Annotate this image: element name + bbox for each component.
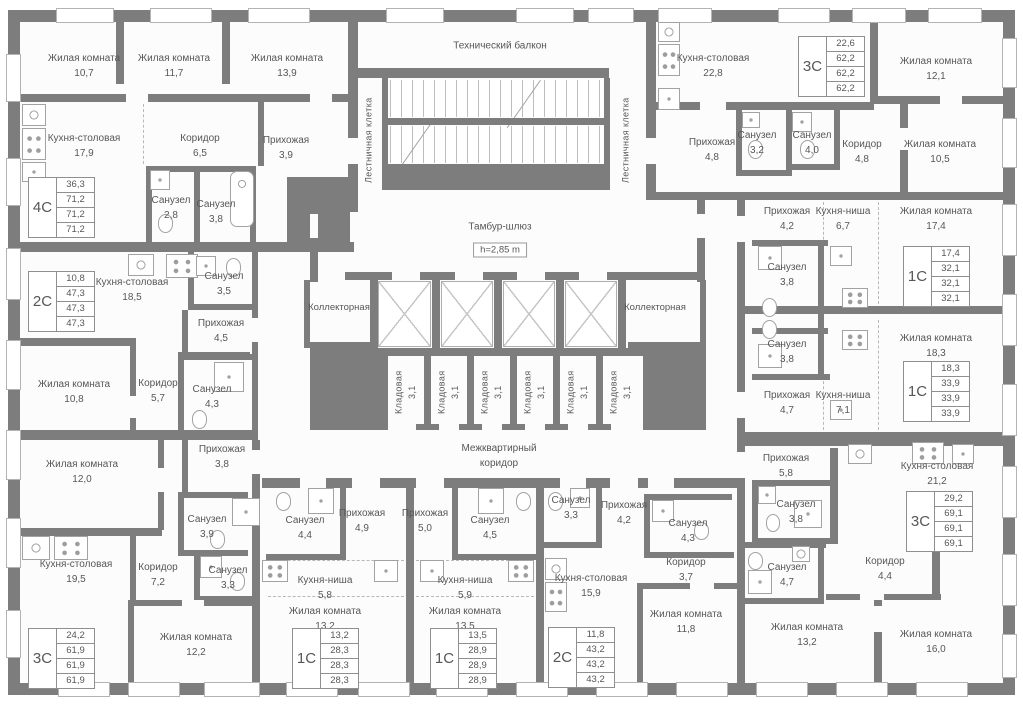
room-area: 3,8 <box>768 275 807 290</box>
room-name: Кухня-столовая <box>40 557 113 572</box>
wall <box>870 96 1003 104</box>
room-label: Жилая комната11,8 <box>650 607 722 637</box>
room-label: Санузел4,7 <box>768 560 807 590</box>
door-gap <box>700 102 726 110</box>
room-area: 4,2 <box>601 513 647 528</box>
window-marker <box>1002 384 1017 436</box>
apartment-area-value: 32,1 <box>932 261 969 276</box>
window-marker <box>1002 634 1017 678</box>
room-name: Жилая комната <box>904 137 976 152</box>
room-name: Коридор <box>138 560 178 575</box>
window-marker <box>6 518 21 568</box>
room-area: 4,7 <box>768 575 807 590</box>
room-label: Жилая комната12,0 <box>46 457 118 487</box>
room-name: Жилая комната <box>771 620 843 635</box>
room-name: Кухня-ниша <box>816 204 871 219</box>
room-label: Санузел3,9 <box>188 512 227 542</box>
wall <box>834 108 840 170</box>
apartment-area-value: 24,2 <box>57 629 94 643</box>
room-label: Жилая комната10,7 <box>48 51 120 81</box>
wall <box>348 22 358 212</box>
wall <box>744 598 824 604</box>
wall <box>188 304 256 310</box>
wall <box>556 280 564 354</box>
room-label: Кухня-столовая18,5 <box>96 275 169 305</box>
room-area: 13,9 <box>251 66 323 81</box>
door-gap <box>874 606 882 632</box>
room-area: 18,3 <box>900 346 972 361</box>
room-area: 7,2 <box>138 575 178 590</box>
window-marker <box>6 54 21 102</box>
room-area: 4,0 <box>793 143 832 158</box>
room-area: 13,2 <box>771 635 843 650</box>
storage-area: 3,1 <box>535 353 549 431</box>
room-label: Кухня-столовая21,2 <box>901 459 974 489</box>
apartment-area-value: 43,2 <box>577 657 614 672</box>
wall <box>494 280 502 354</box>
apartment-summary-table: 3С29,269,169,169,1 <box>906 491 973 552</box>
apartment-area-values: 22,662,262,262,2 <box>827 37 864 96</box>
room-name: Коридор <box>666 555 706 570</box>
room-name: Прихожая <box>689 135 735 150</box>
apartment-summary-table: 4С36,371,271,271,2 <box>28 177 95 238</box>
storage-name: Кладовая <box>565 353 579 431</box>
collector-label: Коллекторная <box>308 301 370 315</box>
wall <box>252 440 260 684</box>
apartment-area-values: 17,432,132,132,1 <box>932 247 969 306</box>
window-marker <box>1002 466 1017 518</box>
wall <box>652 192 1003 200</box>
apartment-area-value: 69,1 <box>935 521 972 536</box>
room-name: Санузел <box>669 516 708 531</box>
window-marker <box>6 610 21 658</box>
wall <box>467 356 474 426</box>
window-marker <box>852 8 906 23</box>
room-area: 2,8 <box>152 208 191 223</box>
room-area: 22,8 <box>677 66 750 81</box>
room-label: Жилая комната10,5 <box>904 137 976 167</box>
apartment-area-value: 61,9 <box>57 673 94 688</box>
door-gap <box>158 468 164 492</box>
door-gap <box>648 478 674 488</box>
room-label: Коридор6,5 <box>180 131 220 161</box>
room-label: Жилая комната12,2 <box>160 630 232 660</box>
room-area: 3,8 <box>197 212 236 227</box>
room-name: Коридор <box>865 554 905 569</box>
window-marker <box>128 682 180 697</box>
storage-name: Кладовая <box>608 353 622 431</box>
room-name: Прихожая <box>601 498 647 513</box>
apartment-area-value: 69,1 <box>935 506 972 521</box>
room-name: Жилая комната <box>38 377 110 392</box>
door-gap <box>697 214 705 238</box>
apartment-area-value: 62,2 <box>827 81 864 96</box>
storage-label: Кладовая3,1 <box>522 353 549 431</box>
window-marker <box>6 430 21 480</box>
wall <box>618 280 626 354</box>
room-label: Прихожая4,2 <box>764 204 810 234</box>
apartment-area-values: 24,261,961,961,9 <box>57 629 94 688</box>
window-marker <box>756 682 808 697</box>
wall <box>20 242 354 252</box>
wall <box>752 374 830 380</box>
wall <box>432 280 440 354</box>
room-area: 4,4 <box>286 528 325 543</box>
fixture-box-icon <box>232 498 260 526</box>
room-label: Прихожая4,2 <box>601 498 647 528</box>
room-label: Прихожая3,9 <box>263 133 309 163</box>
apartment-summary-table: 2С11,843,243,243,2 <box>548 627 615 688</box>
tech-balcony-label: Технический балкон <box>453 39 547 54</box>
door-gap <box>517 272 545 280</box>
apartment-area-values: 10,847,347,347,3 <box>57 272 94 331</box>
room-name: Санузел <box>193 382 232 397</box>
window-marker <box>386 8 444 23</box>
door-gap <box>737 392 745 418</box>
apartment-area-value: 71,2 <box>57 207 94 222</box>
room-name: Санузел <box>286 513 325 528</box>
room-area: 4,2 <box>764 219 810 234</box>
wall <box>388 164 606 190</box>
room-area: 16,0 <box>900 642 972 657</box>
dashed-line <box>878 320 879 430</box>
door-gap <box>737 452 745 478</box>
fixture-box-icon <box>830 246 852 266</box>
apartment-summary-table: 2С10,847,347,347,3 <box>28 271 95 332</box>
door-gap <box>860 594 884 600</box>
room-area: 4,4 <box>865 569 905 584</box>
room-area: 4,5 <box>471 528 510 543</box>
door-gap <box>392 272 420 280</box>
wall <box>744 542 826 548</box>
room-area: 4,7 <box>764 403 810 418</box>
apartment-type: 4С <box>29 178 57 237</box>
room-label: Прихожая3,8 <box>199 442 245 472</box>
apartment-area-value: 28,3 <box>321 673 358 688</box>
fixture-box-icon <box>478 488 504 514</box>
room-label: Санузел2,8 <box>152 193 191 223</box>
room-area: 5,8 <box>763 466 809 481</box>
elevator-shaft <box>503 281 555 347</box>
wall <box>130 536 136 602</box>
window-marker <box>6 158 21 206</box>
room-name: Кухня-ниша <box>298 573 353 588</box>
room-name: Санузел <box>205 269 244 284</box>
wall <box>287 177 350 242</box>
apartment-area-value: 28,3 <box>321 658 358 673</box>
apartment-area-value: 17,4 <box>932 247 969 261</box>
wall <box>182 438 188 494</box>
room-name: Санузел <box>552 493 591 508</box>
room-name: Прихожая <box>199 442 245 457</box>
wall <box>452 486 458 560</box>
wall <box>697 196 705 282</box>
room-name: Санузел <box>152 193 191 208</box>
wall <box>130 346 136 438</box>
wall <box>932 546 940 596</box>
room-label: Жилая комната18,3 <box>900 331 972 361</box>
room-name: Санузел <box>777 497 816 512</box>
apartment-summary-table: 1С17,432,132,132,1 <box>903 246 970 307</box>
apartment-area-value: 47,3 <box>57 316 94 331</box>
room-area: 4,8 <box>842 152 882 167</box>
apartment-summary-table: 3С22,662,262,262,2 <box>798 36 865 97</box>
door-gap <box>416 478 444 488</box>
window-marker <box>1002 204 1017 256</box>
apartment-area-value: 61,9 <box>57 643 94 658</box>
storage-area: 3,1 <box>406 353 420 431</box>
window-marker <box>248 8 310 23</box>
door-gap <box>737 216 745 242</box>
room-label: Кухня-ниша5,8 <box>298 573 353 603</box>
room-label: Кухня-столовая19,5 <box>40 557 113 587</box>
wall <box>786 164 840 170</box>
stove-icon <box>166 254 198 278</box>
apartment-type: 2С <box>29 272 57 331</box>
door-gap <box>579 272 607 280</box>
apartment-area-value: 33,9 <box>932 406 969 421</box>
room-area: 18,5 <box>96 290 169 305</box>
storage-name: Кладовая <box>436 353 450 431</box>
apartment-area-value: 18,3 <box>932 362 969 376</box>
room-name: Жилая комната <box>650 607 722 622</box>
room-area: 3,9 <box>188 527 227 542</box>
room-area: 4,5 <box>198 331 244 346</box>
wall <box>870 22 878 104</box>
storage-name: Кладовая <box>479 353 493 431</box>
wall <box>818 314 824 380</box>
apartment-area-value: 10,8 <box>57 272 94 286</box>
room-name: Жилая комната <box>48 51 120 66</box>
stair-flight <box>390 80 603 117</box>
room-name: Коридор <box>180 131 220 146</box>
apartment-area-values: 36,371,271,271,2 <box>57 178 94 237</box>
wall <box>310 348 706 356</box>
room-label: Коридор4,4 <box>865 554 905 584</box>
toilet-icon <box>192 410 207 429</box>
room-label: Кухня-столовая17,9 <box>48 131 121 161</box>
wall <box>656 102 874 110</box>
wall <box>646 22 656 200</box>
room-area: 10,8 <box>38 392 110 407</box>
room-area: 15,9 <box>555 586 628 601</box>
room-area: 12,2 <box>160 645 232 660</box>
door-gap <box>130 396 136 418</box>
wall <box>20 94 350 102</box>
room-label: Жилая комната13,9 <box>251 51 323 81</box>
window-marker <box>150 8 212 23</box>
sink-icon <box>658 22 680 42</box>
room-area: 12,0 <box>46 472 118 487</box>
wall <box>643 356 706 430</box>
storage-label: Кладовая3,1 <box>393 353 420 431</box>
window-marker <box>1002 38 1017 88</box>
apartment-area-value: 32,1 <box>932 291 969 306</box>
room-label: Жилая комната12,1 <box>900 54 972 84</box>
door-gap <box>610 478 638 488</box>
apartment-type: 3С <box>907 492 935 551</box>
room-name: Кухня-ниша <box>438 573 493 588</box>
storage-area: 3,1 <box>621 353 635 431</box>
window-marker <box>836 682 888 697</box>
room-label: Санузел3,8 <box>777 497 816 527</box>
window-marker <box>1002 554 1017 606</box>
room-area: 5,8 <box>298 588 353 603</box>
room-label: Прихожая5,8 <box>763 451 809 481</box>
room-area: 19,5 <box>40 572 113 587</box>
room-label: Санузел3,3 <box>209 563 248 593</box>
apartment-area-value: 22,6 <box>827 37 864 51</box>
wall <box>700 280 706 348</box>
room-label: Санузел3,8 <box>197 197 236 227</box>
room-area: 3,5 <box>205 284 244 299</box>
door-gap <box>348 138 358 164</box>
fixture-box-icon <box>658 88 680 110</box>
room-name: Санузел <box>188 512 227 527</box>
room-label: Санузел4,5 <box>471 513 510 543</box>
room-area: 3,8 <box>768 352 807 367</box>
wall <box>385 118 607 125</box>
room-label: Коридор5,7 <box>138 376 178 406</box>
room-area: 3,9 <box>263 148 309 163</box>
storage-area: 3,1 <box>449 353 463 431</box>
room-area: 4,3 <box>193 397 232 412</box>
room-label: Санузел3,3 <box>552 493 591 523</box>
window-marker <box>516 8 574 23</box>
wall <box>20 528 162 536</box>
elevator-shaft <box>565 281 617 347</box>
apartment-type: 1С <box>904 362 932 421</box>
ceiling-height-badge: h=2,85 m <box>473 243 527 258</box>
room-name: Санузел <box>768 337 807 352</box>
room-area: 3,8 <box>777 512 816 527</box>
room-name: Жилая комната <box>900 331 972 346</box>
apartment-area-value: 29,2 <box>935 492 972 506</box>
wall <box>424 356 431 426</box>
room-area: 11,7 <box>138 66 210 81</box>
room-label: Прихожая5,0 <box>402 506 448 536</box>
apartment-type: 3С <box>799 37 827 96</box>
window-marker <box>588 8 634 23</box>
apartment-area-value: 33,9 <box>932 391 969 406</box>
room-label: Санузел3,8 <box>768 337 807 367</box>
room-label: Жилая комната17,4 <box>900 204 972 234</box>
window-marker <box>204 682 260 697</box>
stove-icon <box>842 288 868 308</box>
fixture-box-icon <box>374 560 398 582</box>
room-area: 7,1 <box>816 403 871 418</box>
room-name: Санузел <box>738 128 777 143</box>
door-gap <box>940 96 962 104</box>
storage-label: Кладовая3,1 <box>608 353 635 431</box>
apartment-area-value: 28,9 <box>459 658 496 673</box>
room-label: Коридор7,2 <box>138 560 178 590</box>
elevator-shaft <box>441 281 493 347</box>
room-label: Санузел4,0 <box>793 128 832 158</box>
apartment-summary-table: 1С18,333,933,933,9 <box>903 361 970 422</box>
room-name: Санузел <box>209 563 248 578</box>
stair-flight <box>390 126 603 163</box>
storage-area: 3,1 <box>492 353 506 431</box>
door-gap <box>252 450 260 474</box>
room-name: Жилая комната <box>251 51 323 66</box>
room-name: Кухня-столовая <box>555 571 628 586</box>
apartment-area-value: 32,1 <box>932 276 969 291</box>
stove-icon <box>842 330 868 350</box>
apartment-summary-table: 1С13,228,328,328,3 <box>292 628 359 689</box>
room-label: Кухня-ниша7,1 <box>816 388 871 418</box>
room-name: Коридор <box>138 376 178 391</box>
storage-label: Кладовая3,1 <box>436 353 463 431</box>
apartment-area-value: 28,9 <box>459 673 496 688</box>
door-gap <box>310 214 318 238</box>
room-label: Жилая комната13,2 <box>771 620 843 650</box>
room-name: Санузел <box>793 128 832 143</box>
fixture-box-icon <box>742 112 760 128</box>
wall <box>830 480 838 544</box>
storage-label: Кладовая3,1 <box>565 353 592 431</box>
room-label: Жилая комната10,8 <box>38 377 110 407</box>
apartment-area-value: 28,9 <box>459 643 496 658</box>
wall <box>596 356 603 426</box>
room-name: Жилая комната <box>289 604 361 619</box>
room-name: Санузел <box>768 560 807 575</box>
inter-apartment-corridor-label: Межквартирный коридор <box>461 441 536 471</box>
room-name: Санузел <box>768 260 807 275</box>
room-label: Санузел3,2 <box>738 128 777 158</box>
apartment-area-value: 71,2 <box>57 192 94 207</box>
door-gap <box>560 478 586 488</box>
door-gap <box>455 272 483 280</box>
wall <box>510 356 517 426</box>
apartment-area-value: 28,3 <box>321 643 358 658</box>
door-gap <box>646 138 656 164</box>
apartment-area-value: 47,3 <box>57 301 94 316</box>
room-name: Жилая комната <box>900 204 972 219</box>
room-name: Кухня-столовая <box>677 51 750 66</box>
window-marker <box>916 682 968 697</box>
window-marker <box>1002 294 1017 346</box>
room-area: 12,1 <box>900 69 972 84</box>
room-area: 4,9 <box>339 521 385 536</box>
window-marker <box>658 8 712 23</box>
room-area: 11,8 <box>650 622 722 637</box>
room-area: 3,7 <box>666 570 706 585</box>
window-marker <box>928 8 982 23</box>
floor-plan: Технический балкон Тамбур-шлюз h=2,85 m … <box>0 0 1023 705</box>
wall <box>736 170 792 176</box>
room-area: 3,2 <box>738 143 777 158</box>
stove-icon <box>262 560 288 582</box>
wall <box>353 68 609 78</box>
wall <box>310 356 388 430</box>
apartment-area-value: 71,2 <box>57 222 94 237</box>
wall <box>744 306 1003 314</box>
room-area: 4,8 <box>689 150 735 165</box>
room-label: Прихожая4,5 <box>198 316 244 346</box>
room-area: 5,7 <box>138 391 178 406</box>
room-area: 17,4 <box>900 219 972 234</box>
room-label: Прихожая4,7 <box>764 388 810 418</box>
apartment-area-value: 69,1 <box>935 536 972 551</box>
toilet-icon <box>748 552 763 570</box>
room-label: Прихожая4,8 <box>689 135 735 165</box>
wall <box>818 542 824 604</box>
storage-name: Кладовая <box>522 353 536 431</box>
fixture-box-icon <box>758 486 776 504</box>
door-gap <box>352 478 380 488</box>
door-gap <box>300 478 326 488</box>
